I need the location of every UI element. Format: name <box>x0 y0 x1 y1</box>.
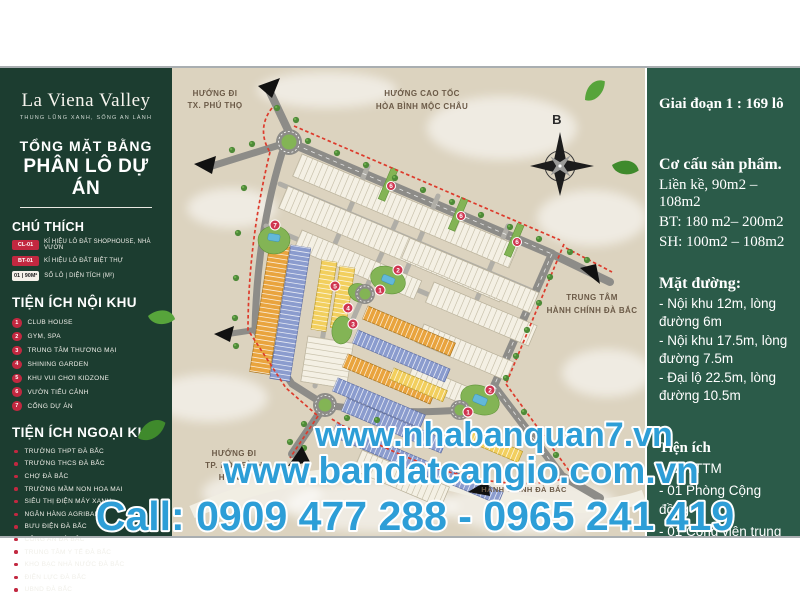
amenity-number-badge: 4 <box>12 360 22 370</box>
poster-root: La Viena Valley THUNG LŨNG XANH, SỐNG AN… <box>0 0 800 600</box>
arrow-west-2 <box>214 326 234 342</box>
bullet-icon <box>14 525 18 529</box>
amenity-number-badge: 6 <box>12 387 22 397</box>
amenity-number-badge: 5 <box>12 374 22 384</box>
arrow-west <box>194 156 216 174</box>
info-line: SH: 100m2 – 108m2 <box>659 234 792 251</box>
bullet-icon <box>14 550 18 554</box>
label-phu-tho: HƯỚNG ĐI <box>193 89 238 98</box>
internal-amenity-item: 7 CỔNG DỰ ÁN <box>12 401 160 411</box>
svg-text:7: 7 <box>273 222 277 229</box>
lot-size-badge: 01 | 90M² <box>12 271 39 281</box>
external-amenity-item: NGÂN HÀNG AGRIBANK <box>12 511 160 518</box>
bullet-icon <box>14 563 18 567</box>
info-line: - 02 TTTM <box>659 460 792 479</box>
amenity-label: CLUB HOUSE <box>28 319 73 326</box>
frame-line-bottom <box>0 536 800 538</box>
external-amenity-item: TRƯỜNG MẦM NON HOA MAI <box>12 486 160 493</box>
legend-heading: CHÚ THÍCH <box>12 220 160 234</box>
svg-text:HÒA BÌNH MỘC CHÂU: HÒA BÌNH MỘC CHÂU <box>376 102 468 111</box>
external-amenity-item: KHO BẠC NHÀ NƯỚC ĐÀ BẮC <box>12 561 160 568</box>
amenity-label: SHINING GARDEN <box>28 361 89 368</box>
product-structure-section: Cơ cấu sản phẩm. Liền kề, 90m2 – 108m2BT… <box>659 156 792 251</box>
amenity-number-badge: 3 <box>12 346 22 356</box>
svg-text:HÀNH CHÍNH ĐÀ BẮC: HÀNH CHÍNH ĐÀ BẮC <box>547 306 638 315</box>
amenity-number-badge: 7 <box>12 401 22 411</box>
amenity-label: VƯỜN TIỂU CẢNH <box>28 389 89 396</box>
amenity-label: NGÂN HÀNG AGRIBANK <box>25 511 105 518</box>
bullet-icon <box>14 576 18 580</box>
bullet-icon <box>14 538 18 542</box>
svg-text:6: 6 <box>389 183 393 190</box>
info-line: - Đại lộ 22.5m, lòng đường 10.5m <box>659 369 792 404</box>
svg-text:TX. PHÚ THỌ: TX. PHÚ THỌ <box>187 101 242 110</box>
structure-heading: Cơ cấu sản phẩm. <box>659 156 792 174</box>
bullet-icon <box>14 513 18 517</box>
internal-amenities-list: 1 CLUB HOUSE 2 GYM, SPA 3 TRUNG TÂM THƯƠ… <box>12 318 160 411</box>
internal-amenity-item: 6 VƯỜN TIỂU CẢNH <box>12 387 160 397</box>
amenity-label: BƯU ĐIỆN ĐÀ BẮC <box>25 523 87 530</box>
legend-row-lot-size: 01 | 90M² SỐ LÔ | DIỆN TÍCH (M²) <box>12 271 160 281</box>
amenity-label: CỔNG DỰ ÁN <box>28 403 73 410</box>
info-line: BT: 180 m2– 200m2 <box>659 214 792 231</box>
amenity-label: TRƯỜNG MẦM NON HOA MAI <box>25 486 123 493</box>
bullet-icon <box>14 500 18 504</box>
title-underline <box>20 207 152 208</box>
svg-text:TP. HÒA BÌNH: TP. HÒA BÌNH <box>205 461 263 470</box>
svg-text:1: 1 <box>466 409 470 416</box>
lot-code-badge: CL-01 <box>12 240 39 250</box>
bullet-icon <box>14 462 18 466</box>
external-amenity-item: BƯU ĐIỆN ĐÀ BẮC <box>12 523 160 530</box>
svg-text:2: 2 <box>488 387 492 394</box>
svg-text:5: 5 <box>333 283 337 290</box>
frame-line-top <box>0 66 800 68</box>
svg-text:1: 1 <box>378 287 382 294</box>
amenity-number-badge: 1 <box>12 318 22 328</box>
info-line: - Nội khu 12m, lòng đường 6m <box>659 295 792 330</box>
phase-title: Giai đoạn 1 : 169 lô <box>659 96 792 113</box>
legend-label: KÍ HIỆU LÔ ĐẤT BIỆT THỰ <box>44 258 123 264</box>
svg-text:3: 3 <box>351 321 355 328</box>
legend-row-villa: BT-01 KÍ HIỆU LÔ ĐẤT BIỆT THỰ <box>12 256 160 266</box>
amenity-number-badge: 2 <box>12 332 22 342</box>
legend-row-shophouse: CL-01 KÍ HIỆU LÔ ĐẤT SHOPHOUSE, NHÀ VƯỜN <box>12 239 160 251</box>
label-trung-tam: TRUNG TÂM <box>566 293 618 302</box>
amenity-heading: Tiện ích <box>659 440 792 457</box>
amenity-label: TRƯỜNG THCS ĐÀ BẮC <box>25 460 105 467</box>
info-line: - 01 Phòng Cộng đồng <box>659 482 792 520</box>
amenity-lines: - 02 TTTM- 01 Phòng Cộng đồng- 01 Công v… <box>659 460 792 560</box>
amenity-label: KHO BẠC NHÀ NƯỚC ĐÀ BẮC <box>25 561 125 568</box>
external-amenity-item: TRUNG TÂM Y TẾ ĐÀ BẮC <box>12 549 160 556</box>
internal-amenity-item: 4 SHINING GARDEN <box>12 360 160 370</box>
road-lines: - Nội khu 12m, lòng đường 6m- Nội khu 17… <box>659 295 792 404</box>
internal-amenity-item: 2 GYM, SPA <box>12 332 160 342</box>
amenity-label: SIÊU THỊ ĐIỆN MÁY XANH <box>25 498 112 505</box>
info-line: - 01 Công viên trung tâm <box>659 523 792 561</box>
external-amenity-item: SIÊU THỊ ĐIỆN MÁY XANH <box>12 498 160 505</box>
legend-label: SỐ LÔ | DIỆN TÍCH (M²) <box>44 273 114 279</box>
info-line: - Nội khu 17.5m, lòng đường 7.5m <box>659 332 792 367</box>
brand-tagline: THUNG LŨNG XANH, SỐNG AN LÀNH <box>12 115 160 121</box>
bullet-icon <box>14 588 18 592</box>
label-cao-toc: HƯỚNG CAO TỐC <box>384 88 460 98</box>
masterplan-map: 1 2 1 2 3 4 5 6 6 6 7 B HƯỚNG ĐI TX. PHÚ… <box>172 68 645 536</box>
masterplan-canvas: 1 2 1 2 3 4 5 6 6 6 7 B HƯỚNG ĐI TX. PHÚ… <box>172 68 645 536</box>
amenity-section: Tiện ích - 02 TTTM- 01 Phòng Cộng đồng- … <box>659 440 792 560</box>
svg-text:2: 2 <box>396 267 400 274</box>
svg-text:6: 6 <box>515 239 519 246</box>
info-line: Liền kề, 90m2 – 108m2 <box>659 177 792 211</box>
amenity-label: GYM, SPA <box>28 333 61 340</box>
external-amenity-item: TRƯỜNG THCS ĐÀ BẮC <box>12 460 160 467</box>
external-amenities-heading: TIỆN ÍCH NGOẠI KHU <box>12 425 160 440</box>
bullet-icon <box>14 450 18 454</box>
label-hanh-chinh-bottom: HÀNH CHÍNH ĐÀ BẮC <box>481 485 567 494</box>
compass-north-label: B <box>552 112 562 127</box>
svg-text:HÀ NỘI: HÀ NỘI <box>219 473 249 482</box>
amenity-label: CHỢ ĐÀ BẮC <box>25 473 69 480</box>
external-amenity-item: UBND ĐÀ BẮC <box>12 586 160 593</box>
external-amenities-list: TRƯỜNG THPT ĐÀ BẮC TRƯỜNG THCS ĐÀ BẮC CH… <box>12 448 160 594</box>
structure-lines: Liền kề, 90m2 – 108m2BT: 180 m2– 200m2SH… <box>659 177 792 251</box>
amenity-label: TRUNG TÂM Y TẾ ĐÀ BẮC <box>25 549 112 556</box>
bullet-icon <box>14 475 18 479</box>
masterplan-title-line2: PHÂN LÔ DỰ ÁN <box>12 156 160 200</box>
lot-code-badge: BT-01 <box>12 256 39 266</box>
amenity-label: TRƯỜNG THPT ĐÀ BẮC <box>25 448 105 455</box>
amenity-label: UBND ĐÀ BẮC <box>25 586 73 593</box>
info-sidebar: Giai đoạn 1 : 169 lô Cơ cấu sản phẩm. Li… <box>645 68 800 536</box>
road-section: Mặt đường: - Nội khu 12m, lòng đường 6m-… <box>659 275 792 404</box>
internal-amenity-item: 3 TRUNG TÂM THƯƠNG MẠI <box>12 346 160 356</box>
legend-sidebar: La Viena Valley THUNG LŨNG XANH, SỐNG AN… <box>0 68 172 536</box>
external-amenity-item: TRƯỜNG THPT ĐÀ BẮC <box>12 448 160 455</box>
amenity-label: KHU VUI CHƠI KIDZONE <box>28 375 110 382</box>
brand-name: La Viena Valley <box>12 90 160 112</box>
internal-amenity-item: 5 KHU VUI CHƠI KIDZONE <box>12 374 160 384</box>
external-amenity-item: CHỢ ĐÀ BẮC <box>12 473 160 480</box>
internal-amenities-heading: TIỆN ÍCH NỘI KHU <box>12 295 160 310</box>
bullet-icon <box>14 487 18 491</box>
internal-amenity-item: 1 CLUB HOUSE <box>12 318 160 328</box>
amenity-label: TRUNG TÂM THƯƠNG MẠI <box>28 347 117 354</box>
road-heading: Mặt đường: <box>659 275 792 293</box>
legend-label: KÍ HIỆU LÔ ĐẤT SHOPHOUSE, NHÀ VƯỜN <box>44 239 160 251</box>
external-amenity-item: ĐIỆN LỰC ĐÀ BẮC <box>12 574 160 581</box>
amenity-label: ĐIỆN LỰC ĐÀ BẮC <box>25 574 87 581</box>
label-hoa-binh: HƯỚNG ĐI <box>212 449 257 458</box>
svg-text:4: 4 <box>346 305 350 312</box>
masterplan-title-line1: TỔNG MẶT BẰNG <box>12 138 160 154</box>
svg-text:6: 6 <box>459 213 463 220</box>
